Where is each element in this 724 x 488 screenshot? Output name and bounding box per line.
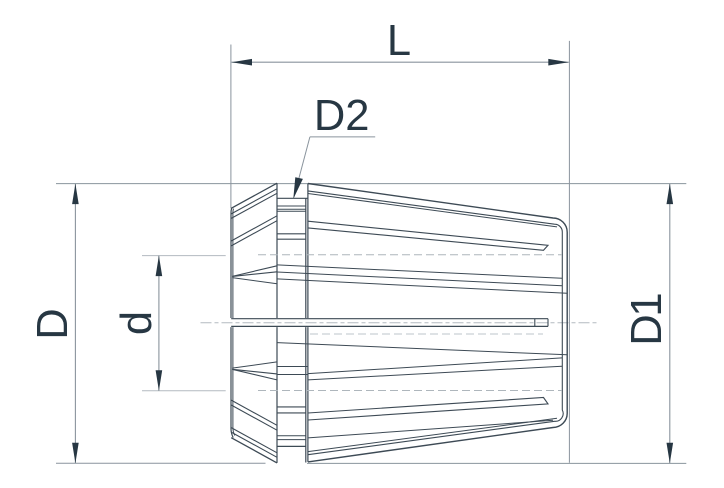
svg-text:D2: D2 [314, 92, 370, 140]
svg-text:d: d [113, 311, 161, 335]
svg-text:D: D [29, 308, 77, 339]
svg-text:L: L [387, 17, 411, 65]
svg-text:D1: D1 [623, 294, 671, 346]
